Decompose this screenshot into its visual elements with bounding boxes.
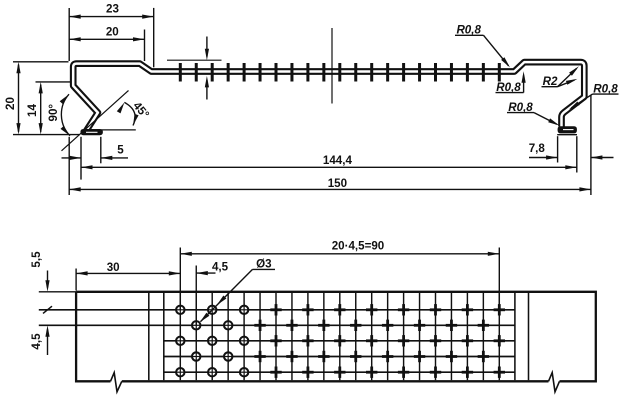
svg-text:20: 20 [4,97,17,110]
svg-text:23: 23 [106,3,119,16]
svg-text:144,4: 144,4 [323,154,353,167]
svg-text:150: 150 [328,177,347,190]
svg-text:90°: 90° [47,104,60,122]
svg-text:20: 20 [106,26,119,39]
svg-text:14: 14 [26,104,39,117]
svg-text:4,5: 4,5 [30,333,43,350]
svg-text:30: 30 [107,261,120,274]
svg-text:20·4,5=90: 20·4,5=90 [332,240,385,253]
svg-text:4,5: 4,5 [212,260,229,273]
svg-text:Ø3: Ø3 [256,258,272,271]
svg-text:5,5: 5,5 [30,251,43,268]
svg-text:7,8: 7,8 [529,142,546,155]
svg-text:5: 5 [117,144,124,157]
